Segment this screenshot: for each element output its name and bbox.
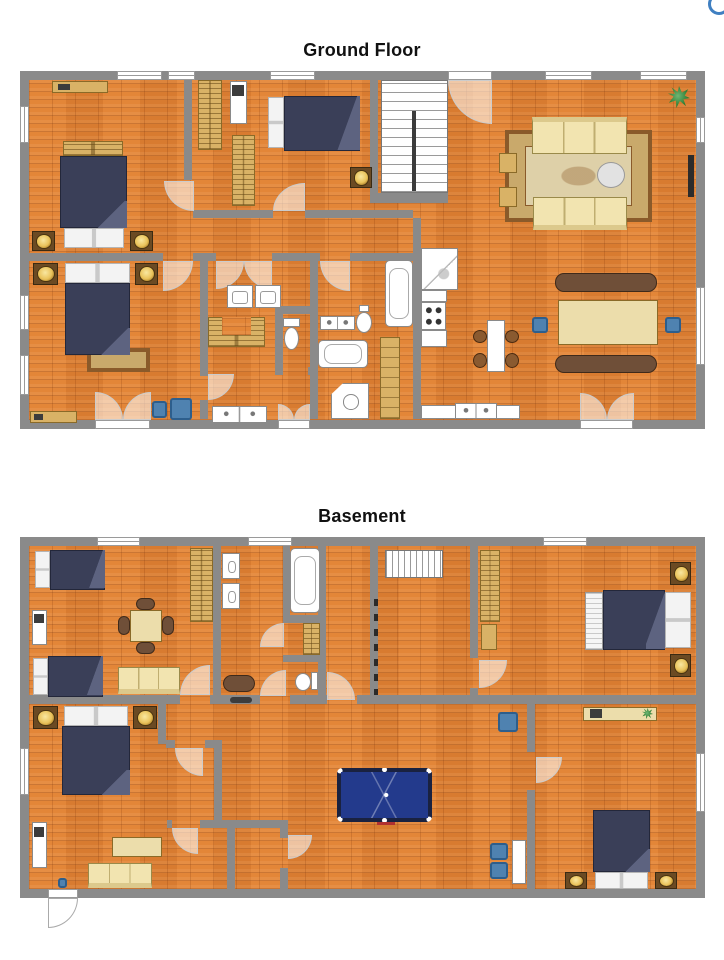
pillows (64, 706, 128, 726)
door-opening (278, 420, 310, 429)
wall (310, 261, 318, 419)
single-bed (50, 550, 105, 590)
laptop (590, 709, 602, 718)
small-table (487, 320, 505, 372)
dryer (255, 285, 281, 308)
tall-cabinet (380, 337, 400, 419)
dining-table (558, 300, 658, 345)
window (20, 295, 29, 330)
corner-logo-icon (708, 0, 724, 15)
wall (290, 695, 327, 704)
desk-notch (222, 317, 251, 335)
pillows (268, 97, 284, 148)
stair-rail (412, 111, 416, 191)
toilet (284, 327, 299, 350)
wardrobe (480, 550, 500, 622)
nightstand-with-lamp (350, 167, 372, 188)
double-bed (603, 590, 665, 650)
nightstand-with-lamp (133, 706, 157, 729)
wall (527, 790, 535, 889)
kitchen-sink (455, 403, 497, 419)
bathtub (290, 548, 320, 613)
ground-floor-title: Ground Floor (0, 40, 724, 61)
bath-mat (223, 675, 255, 692)
wardrobe (232, 135, 255, 206)
desk-chair (232, 85, 244, 96)
nightstand-with-lamp (670, 562, 691, 585)
toilet (295, 673, 311, 691)
nightstand-with-lamp (565, 872, 587, 889)
chair (490, 862, 508, 879)
stool (505, 353, 519, 368)
chair (152, 401, 167, 418)
wall (470, 546, 478, 658)
wall (28, 253, 163, 261)
window (545, 71, 592, 80)
nightstand-with-lamp (655, 872, 677, 889)
kitchen-counter (421, 290, 447, 302)
window (270, 71, 315, 80)
sofa (118, 667, 180, 694)
washer (227, 285, 253, 308)
window (248, 537, 292, 546)
wall-shelving (374, 592, 378, 696)
armchair (499, 153, 517, 173)
pillows (65, 263, 130, 283)
toilet (356, 312, 372, 333)
door-opening (448, 71, 492, 80)
double-bed (593, 810, 650, 872)
pool-table-bed (341, 772, 428, 818)
bathtub (318, 340, 368, 368)
wall (213, 546, 221, 704)
bench (585, 592, 603, 650)
double-sink (212, 406, 267, 423)
window (640, 71, 687, 80)
window (20, 106, 29, 143)
pillows (595, 872, 648, 889)
sofa (88, 863, 152, 888)
sideboard-tv (58, 84, 70, 90)
bench (555, 355, 657, 373)
wall (205, 740, 222, 748)
wall (200, 820, 288, 828)
wall (167, 820, 172, 828)
window (168, 71, 195, 80)
double-bed (62, 726, 130, 795)
sink (222, 583, 240, 609)
window (696, 287, 705, 365)
nightstand-with-lamp (32, 231, 55, 251)
wall (280, 868, 288, 889)
nightstand-with-lamp (33, 706, 58, 729)
chair (490, 843, 508, 860)
sofa (532, 117, 627, 154)
double-sink (320, 316, 355, 330)
exterior-door-opening (48, 889, 78, 898)
dresser (112, 837, 162, 857)
small-blue-item (58, 878, 67, 888)
floor-plan-document: Ground Floor (0, 0, 724, 960)
large-bathtub (385, 260, 413, 327)
double-bed (60, 156, 127, 228)
double-bed (65, 283, 130, 355)
wall (184, 80, 192, 180)
fireplace (688, 155, 694, 197)
window (543, 537, 587, 546)
sideboard-items (34, 414, 43, 420)
wall (158, 704, 166, 744)
stool (473, 353, 487, 368)
door-opening (95, 420, 150, 429)
wall (193, 253, 216, 261)
wall (283, 546, 290, 615)
wall (370, 193, 448, 203)
wall (280, 828, 288, 838)
single-bed (48, 656, 103, 697)
sofa (533, 197, 627, 230)
chair (170, 398, 192, 420)
wall (166, 740, 175, 748)
double-bed (284, 96, 360, 151)
window (117, 71, 162, 80)
stool (505, 330, 519, 343)
window (20, 748, 29, 795)
wall (275, 367, 283, 375)
chair (162, 616, 174, 635)
wardrobe (190, 548, 213, 622)
wall (357, 695, 697, 704)
desk-chair (34, 827, 44, 837)
stove (421, 302, 446, 330)
nightstand-with-lamp (670, 654, 691, 677)
wall (272, 253, 320, 261)
nightstand-with-lamp (135, 263, 158, 285)
chair (136, 642, 155, 654)
chair (118, 616, 130, 635)
round-table (597, 162, 625, 188)
wall (527, 704, 535, 752)
toilet-tank (283, 318, 300, 327)
window (696, 753, 705, 812)
corner-sink-unit (421, 248, 458, 290)
chair (498, 712, 518, 732)
nightstand-with-lamp (130, 231, 153, 251)
chair (532, 317, 548, 333)
chair (665, 317, 681, 333)
stool (473, 330, 487, 343)
wall (214, 748, 222, 822)
desk-chair (34, 614, 44, 623)
wall (305, 210, 413, 218)
bench (63, 141, 123, 156)
ground-floor-plan (20, 71, 705, 429)
wall (200, 261, 208, 376)
wardrobe (198, 80, 222, 150)
window (20, 355, 29, 395)
cabinet (481, 624, 497, 650)
pillows (665, 592, 691, 648)
wall (283, 655, 326, 662)
wall (283, 615, 326, 623)
pillow (33, 658, 48, 695)
chair (136, 598, 155, 610)
wall (193, 210, 273, 218)
pillows (64, 228, 124, 248)
pillow (35, 551, 50, 588)
kitchen-counter (421, 330, 447, 347)
wall (413, 218, 421, 419)
nightstand-with-lamp (33, 263, 58, 285)
sink (222, 553, 240, 579)
window (97, 537, 140, 546)
staircase (385, 550, 443, 578)
basement-plan (20, 537, 705, 898)
window (696, 117, 705, 143)
cabinet (303, 623, 320, 655)
exterior-door-swing (48, 898, 78, 928)
side-table (512, 840, 526, 884)
armchair (499, 187, 517, 207)
door-opening (580, 420, 633, 429)
wall (227, 828, 235, 889)
basement-title: Basement (0, 506, 724, 527)
toilet-tank (359, 305, 369, 312)
wall-shelf (230, 697, 252, 703)
toilet-tank (311, 672, 318, 690)
wall (200, 400, 208, 419)
bench (555, 273, 657, 292)
pool-table-mark (377, 822, 395, 825)
wall (275, 306, 283, 375)
square-table (130, 610, 162, 642)
